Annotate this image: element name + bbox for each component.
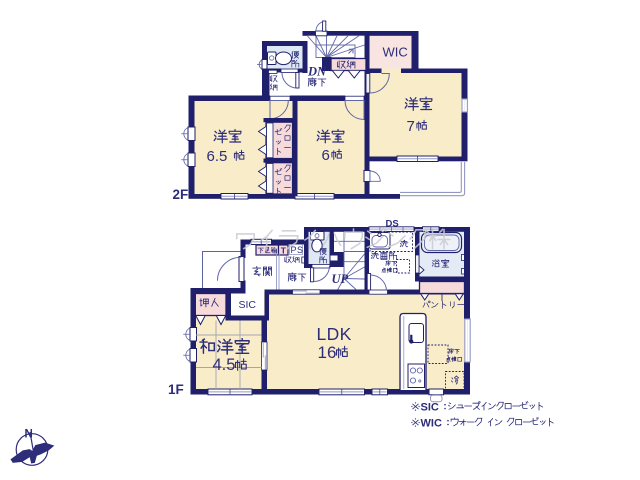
svg-text:6.5: 6.5 (207, 148, 228, 165)
svg-text:WIC: WIC (383, 45, 408, 60)
svg-text:6: 6 (322, 147, 330, 164)
svg-text:1F: 1F (168, 382, 184, 397)
svg-text:UP: UP (332, 272, 349, 286)
svg-text:T: T (281, 245, 287, 255)
svg-text:PS: PS (291, 245, 304, 255)
svg-text:WIC: WIC (421, 418, 442, 430)
svg-text:DS: DS (386, 218, 399, 229)
svg-text:SIC: SIC (239, 299, 257, 311)
svg-text:2F: 2F (173, 187, 189, 202)
svg-text:16: 16 (318, 343, 337, 362)
svg-text:4.5: 4.5 (213, 356, 236, 374)
svg-text:LDK: LDK (317, 324, 352, 344)
svg-text:DN: DN (307, 65, 327, 79)
svg-text:SIC: SIC (421, 402, 439, 414)
svg-text:7: 7 (407, 118, 415, 135)
